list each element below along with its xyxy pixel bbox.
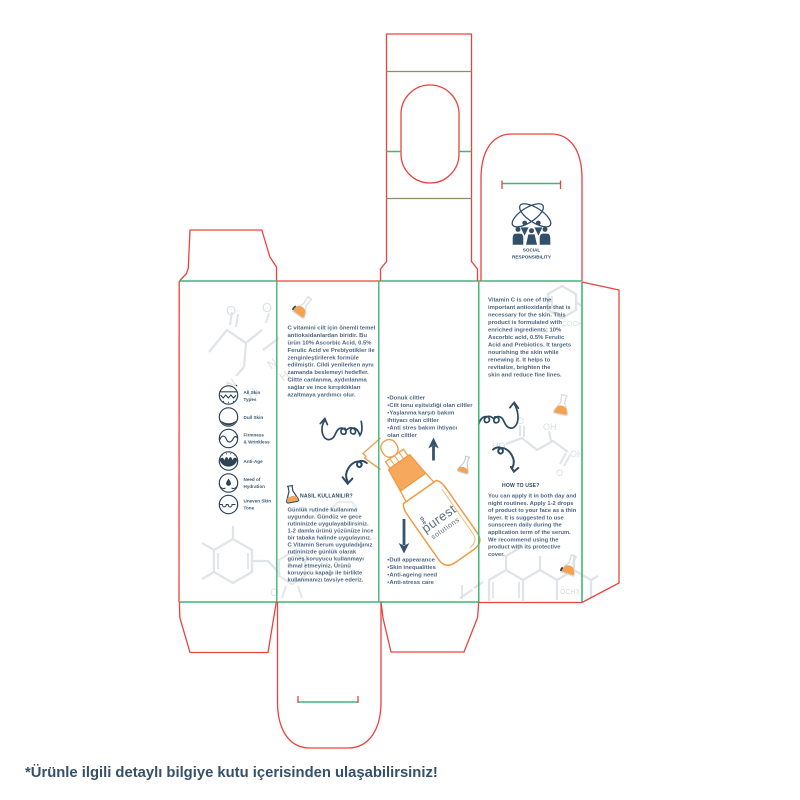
svg-text:•Yaşlanma karşıtı bakım: •Yaşlanma karşıtı bakım xyxy=(387,411,454,417)
svg-text:O: O xyxy=(262,300,272,315)
svg-text:All Skin: All Skin xyxy=(244,390,261,395)
svg-text:bir tabaka halinde uygulayınız: bir tabaka halinde uygulayınız. xyxy=(288,536,372,542)
svg-text:cover.: cover. xyxy=(488,552,505,558)
svg-text:•Cilt tonu eşitsizliği olan ci: •Cilt tonu eşitsizliği olan ciltler xyxy=(387,403,473,409)
svg-text:kullanmanızı tavsiye ederiz.: kullanmanızı tavsiye ederiz. xyxy=(288,578,364,584)
svg-text:uygundur. Gündüz ve gece: uygundur. Gündüz ve gece xyxy=(288,515,363,521)
svg-text:Acid and Prebiotics. It target: Acid and Prebiotics. It targets xyxy=(488,343,572,349)
svg-text:Ascorbic acid, 0.5% Ferulic: Ascorbic acid, 0.5% Ferulic xyxy=(488,335,565,341)
svg-text:C vitamini cilt için önemli te: C vitamini cilt için önemli temel xyxy=(288,326,376,332)
svg-text:layer. It is suggested to use: layer. It is suggested to use xyxy=(488,515,564,521)
svg-text:NASIL KULLANILIR?: NASIL KULLANILIR? xyxy=(300,494,353,500)
svg-text:•Anti-stress care: •Anti-stress care xyxy=(387,580,434,586)
svg-text:azaltmaya yardımcı olur.: azaltmaya yardımcı olur. xyxy=(288,393,356,399)
svg-text:Hydration: Hydration xyxy=(244,484,266,489)
svg-text:ihmal etmeyiniz. Ürünü: ihmal etmeyiniz. Ürünü xyxy=(288,563,352,570)
svg-text:Uneven Skin: Uneven Skin xyxy=(244,499,272,504)
svg-text:1-2 damla ürünü yüzünüze ince: 1-2 damla ürünü yüzünüze ince xyxy=(288,529,375,535)
svg-text:*Ürünle ilgili detaylı bilgiye: *Ürünle ilgili detaylı bilgiye kutu içer… xyxy=(25,764,438,781)
svg-text:Firmness: Firmness xyxy=(244,433,265,438)
svg-text:•Anti-ageing need: •Anti-ageing need xyxy=(387,573,437,579)
svg-text:Anti-Age: Anti-Age xyxy=(244,459,264,464)
svg-text:revitalize, brighten the: revitalize, brighten the xyxy=(488,365,551,371)
svg-text:Types: Types xyxy=(244,397,257,402)
svg-text:OH: OH xyxy=(543,422,557,432)
svg-text:edilmiştir. Cildi yenilerken a: edilmiştir. Cildi yenilerken aynı xyxy=(288,363,374,369)
svg-text:night routines. Apply 1-2 drop: night routines. Apply 1-2 drops xyxy=(488,501,573,507)
svg-text:antioksidanlardan biridir. Bu: antioksidanlardan biridir. Bu xyxy=(288,333,368,339)
svg-text:RESPONSIBILITY: RESPONSIBILITY xyxy=(512,255,552,261)
svg-text:•Donuk ciltler: •Donuk ciltler xyxy=(387,396,425,402)
svg-text:HOW TO USE?: HOW TO USE? xyxy=(502,483,540,489)
svg-text:& Wrinkless: & Wrinkless xyxy=(244,440,271,445)
svg-text:rutininizde günlük olarak: rutininizde günlük olarak xyxy=(288,550,357,556)
svg-text:•Skin inequalities: •Skin inequalities xyxy=(387,565,436,571)
svg-text:Dull Skin: Dull Skin xyxy=(244,415,264,420)
svg-text:skin and reduce fine lines.: skin and reduce fine lines. xyxy=(488,373,562,379)
svg-text:Tone: Tone xyxy=(244,506,255,511)
svg-text:application term of the serum.: application term of the serum. xyxy=(488,530,571,536)
svg-text:zenginleştirilerek formüle: zenginleştirilerek formüle xyxy=(288,355,360,361)
svg-text:O: O xyxy=(556,468,563,478)
svg-text:O: O xyxy=(226,303,236,318)
svg-text:•Dull appearance: •Dull appearance xyxy=(387,558,435,564)
svg-text:COOH: COOH xyxy=(562,321,583,328)
svg-text:OCH3: OCH3 xyxy=(560,589,580,596)
svg-text:koruyucu kapağı ile birlikte: koruyucu kapağı ile birlikte xyxy=(288,571,364,577)
svg-text:necessary for the skin. This: necessary for the skin. This xyxy=(488,313,566,319)
svg-text:olan ciltler: olan ciltler xyxy=(387,433,417,439)
svg-text:Need of: Need of xyxy=(244,477,261,482)
svg-text:of product to your face as a t: of product to your face as a thin xyxy=(488,508,577,514)
svg-text:nourishing the skin while: nourishing the skin while xyxy=(488,350,559,356)
svg-text:Ferulic Acid ve Prebiyotikler: Ferulic Acid ve Prebiyotikler ile xyxy=(288,348,376,354)
svg-text:ihtiyacı olan ciltler: ihtiyacı olan ciltler xyxy=(387,418,439,424)
svg-text:ürün 10% Ascorbic Acid, 0.5%: ürün 10% Ascorbic Acid, 0.5% xyxy=(288,340,373,346)
svg-text:enriched ingredients; 10%: enriched ingredients; 10% xyxy=(488,328,562,334)
svg-text:rutininizde uygulayabilirsiniz: rutininizde uygulayabilirsiniz. xyxy=(288,522,370,528)
svg-text:zamanda beslemeyi hedefler.: zamanda beslemeyi hedefler. xyxy=(288,370,370,376)
svg-text:•Anti stres bakım ihtiyacı: •Anti stres bakım ihtiyacı xyxy=(387,426,457,432)
svg-text:sağlar ve ince kırışıklıkları: sağlar ve ince kırışıklıkları xyxy=(288,385,361,391)
svg-text:We recommend using the: We recommend using the xyxy=(488,537,559,543)
svg-text:güneş koruyucu kullanmayı: güneş koruyucu kullanmayı xyxy=(288,557,365,563)
svg-text:O: O xyxy=(270,587,279,599)
svg-text:SOCIAL: SOCIAL xyxy=(523,248,541,254)
svg-text:Ciltte canlanma, aydınlanma: Ciltte canlanma, aydınlanma xyxy=(288,378,368,384)
svg-text:product is formulated with: product is formulated with xyxy=(488,320,562,326)
svg-text:product with its protective: product with its protective xyxy=(488,545,561,551)
svg-text:renewing it. It helps to: renewing it. It helps to xyxy=(488,358,551,364)
svg-text:sunscreen daily during the: sunscreen daily during the xyxy=(488,523,563,529)
svg-text:Günlük rutinde kullanıma: Günlük rutinde kullanıma xyxy=(288,508,358,514)
svg-text:important antioxidants that is: important antioxidants that is xyxy=(488,305,571,311)
svg-text:C Vitamin Serum uyguladığınız: C Vitamin Serum uyguladığınız xyxy=(288,543,373,549)
svg-text:You can apply it in both day a: You can apply it in both day and xyxy=(488,494,577,500)
svg-text:Vitamin C is one of the: Vitamin C is one of the xyxy=(488,298,552,304)
